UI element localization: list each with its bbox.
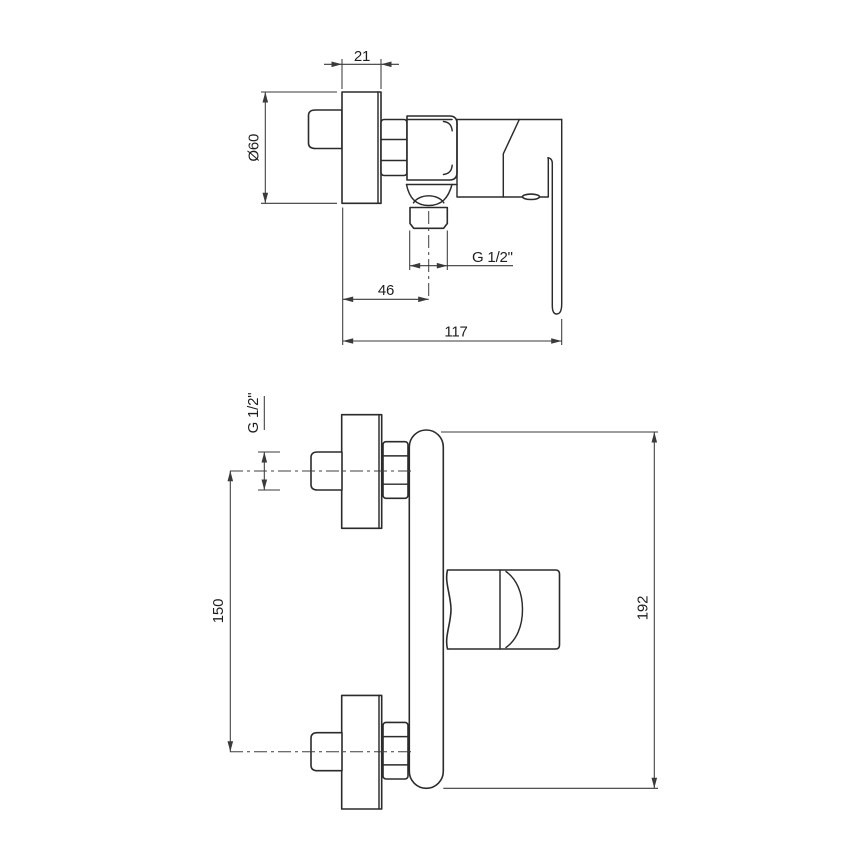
- dim-inlet-thread-label: G 1/2": [245, 393, 262, 434]
- dim-escutcheon-depth: 21: [324, 48, 399, 89]
- dim-escutcheon-diameter-label: Ø60: [246, 134, 263, 162]
- dim-inlet-thread: G 1/2": [245, 393, 280, 490]
- side-view: 21 Ø60 G 1/2" 46: [246, 48, 562, 345]
- indicator-detail: [523, 194, 540, 199]
- dim-total-depth-label: 117: [444, 324, 467, 341]
- union-nut-top: [383, 442, 408, 499]
- mixer-body: [457, 120, 562, 198]
- inlet-valve-body: [407, 116, 457, 180]
- dim-outlet-thread: G 1/2": [410, 231, 513, 271]
- mixer-body-front: [409, 430, 443, 788]
- dim-connection-spacing: 150: [210, 471, 233, 752]
- front-view: G 1/2" 150 192: [210, 393, 658, 809]
- dim-total-height-label: 192: [635, 596, 652, 620]
- lever-handle: [548, 120, 562, 315]
- shower-mixer-technical-drawing: 21 Ø60 G 1/2" 46: [0, 0, 868, 868]
- dim-escutcheon-depth-label: 21: [354, 48, 370, 65]
- drawing-canvas: 21 Ø60 G 1/2" 46: [0, 0, 868, 868]
- union-nut: [381, 120, 407, 176]
- handle-front: [447, 570, 560, 649]
- dim-outlet-thread-label: G 1/2": [472, 249, 513, 266]
- cartridge-cover-edge: [503, 120, 519, 198]
- dim-total-depth: 117: [343, 319, 562, 345]
- dim-connection-spacing-label: 150: [210, 599, 227, 623]
- outlet-shoulder-crest: [414, 196, 444, 203]
- dim-wall-to-outlet-label: 46: [378, 282, 394, 299]
- wall-escutcheon: [342, 92, 381, 203]
- union-nut-bottom: [383, 722, 408, 779]
- wall-supply-pipe: [309, 110, 343, 149]
